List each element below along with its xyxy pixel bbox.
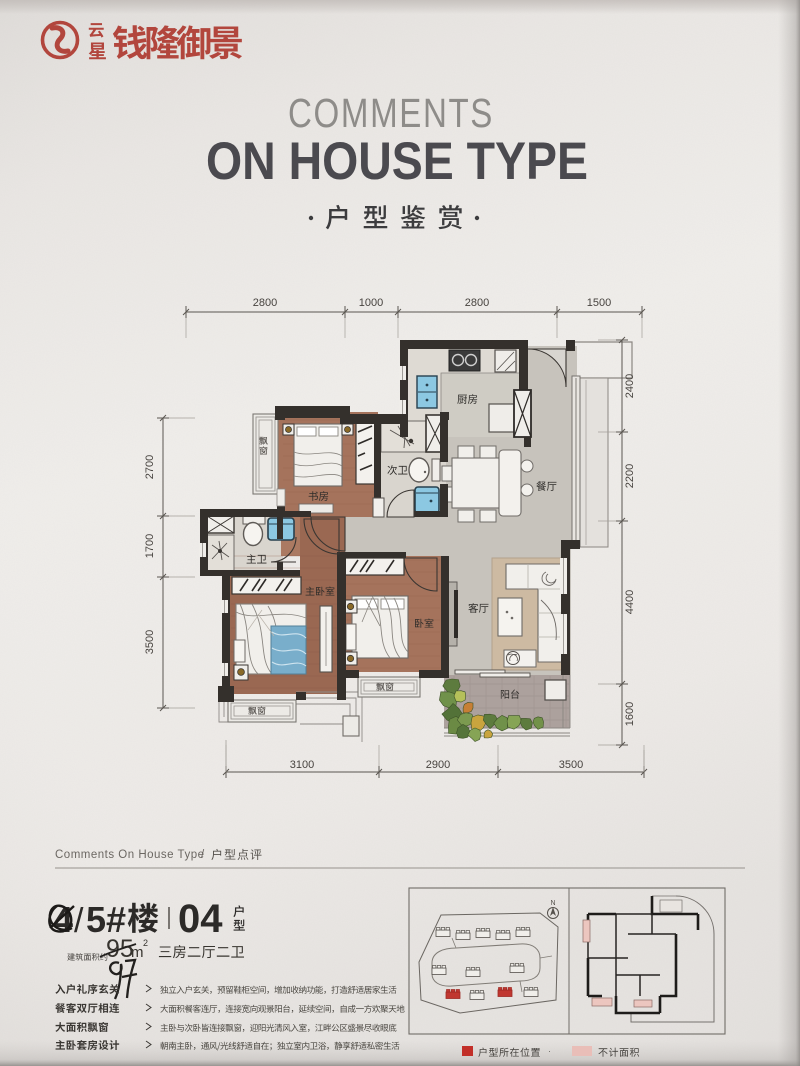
svg-text:1700: 1700 bbox=[144, 534, 156, 558]
svg-text:1000: 1000 bbox=[359, 297, 383, 309]
svg-text:2700: 2700 bbox=[144, 455, 156, 479]
svg-text:04: 04 bbox=[178, 897, 223, 941]
svg-text:2400: 2400 bbox=[624, 374, 636, 398]
svg-text:ON HOUSE TYPE: ON HOUSE TYPE bbox=[206, 132, 588, 191]
svg-text:1500: 1500 bbox=[587, 297, 611, 309]
svg-text:3500: 3500 bbox=[559, 759, 583, 771]
svg-text:1600: 1600 bbox=[624, 702, 636, 726]
svg-text:2800: 2800 bbox=[253, 297, 277, 309]
svg-text:2: 2 bbox=[143, 938, 148, 948]
svg-text:3100: 3100 bbox=[290, 759, 314, 771]
svg-text:4400: 4400 bbox=[624, 590, 636, 614]
svg-text:2800: 2800 bbox=[465, 297, 489, 309]
svg-text:2200: 2200 bbox=[624, 464, 636, 488]
svg-text:3500: 3500 bbox=[144, 630, 156, 654]
svg-text:/: / bbox=[74, 902, 84, 940]
svg-text:Comments On House Type: Comments On House Type bbox=[55, 849, 205, 861]
svg-text:N: N bbox=[550, 900, 555, 907]
svg-text:m: m bbox=[131, 944, 144, 961]
svg-text:5#: 5# bbox=[86, 899, 126, 940]
svg-text:2900: 2900 bbox=[426, 759, 450, 771]
svg-text:·: · bbox=[548, 1046, 551, 1056]
svg-text:COMMENTS: COMMENTS bbox=[288, 90, 494, 136]
